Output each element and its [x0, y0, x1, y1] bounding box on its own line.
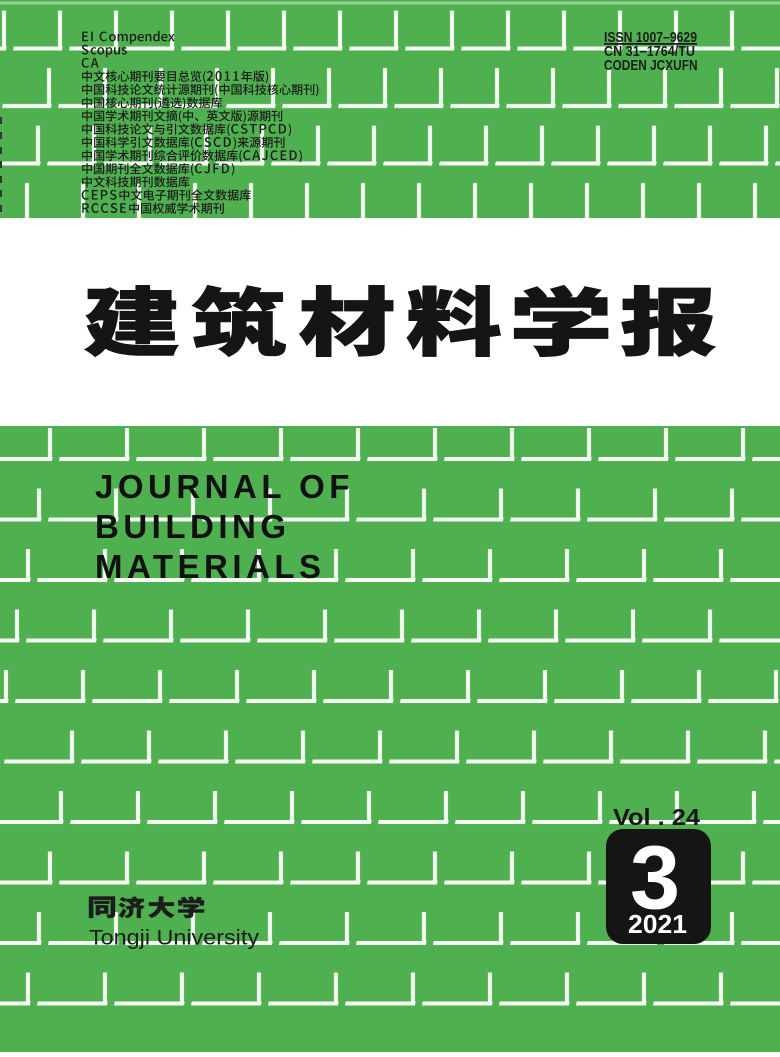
svg-text:Tongji University: Tongji University [89, 927, 260, 950]
svg-text:BUILDING: BUILDING [95, 508, 291, 545]
svg-text:Vol . 24: Vol . 24 [613, 804, 700, 830]
svg-text:CODEN JCXUFN: CODEN JCXUFN [604, 58, 698, 74]
svg-text:2021: 2021 [628, 911, 687, 939]
svg-text:JOURNAL OF: JOURNAL OF [95, 468, 354, 505]
svg-text:MATERIALS: MATERIALS [95, 548, 326, 585]
